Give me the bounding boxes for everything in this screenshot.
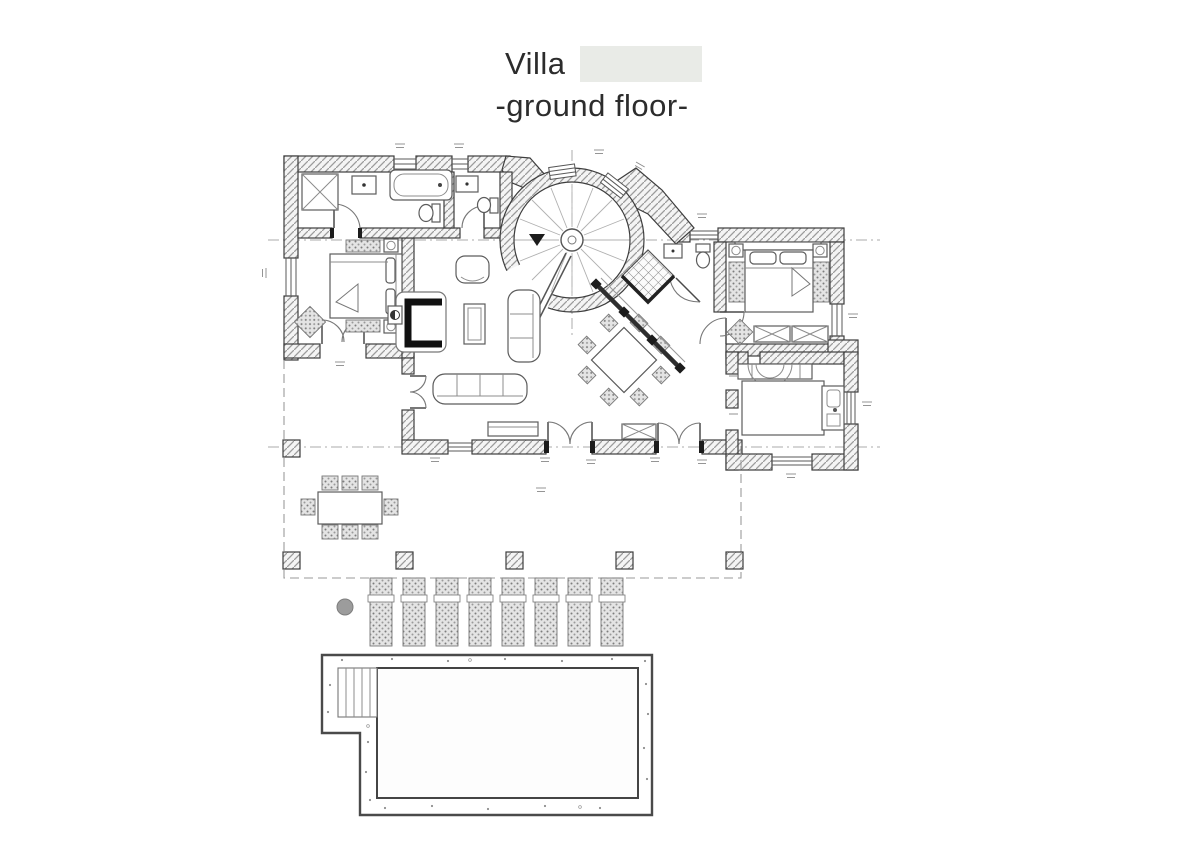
sofa-bottom (433, 374, 527, 404)
bathtub (390, 170, 452, 200)
washbasin (352, 176, 376, 194)
dining-chair (578, 366, 596, 384)
sink-counter (822, 386, 844, 430)
nightstand (346, 240, 380, 252)
outdoor-chair (384, 499, 398, 515)
sun-lounger (533, 578, 559, 646)
sun-lounger (434, 578, 460, 646)
dining-area (578, 314, 670, 406)
outdoor-chair (362, 525, 378, 539)
armchair (456, 256, 489, 283)
plant (294, 306, 325, 337)
terrace-column (506, 552, 523, 569)
swimming-pool (322, 655, 652, 815)
sun-lounger (368, 578, 394, 646)
terrace-column (283, 440, 300, 457)
bedroom-2 (727, 242, 829, 345)
bathroom-1 (302, 170, 452, 222)
dining-chair (630, 388, 648, 406)
page: Villa -ground floor- (0, 0, 1200, 848)
dining-chair (578, 336, 596, 354)
terrace-column (283, 552, 300, 569)
dining-chair (600, 314, 618, 332)
sun-lounger (566, 578, 592, 646)
kitchen (726, 364, 844, 435)
wardrobe (754, 326, 828, 342)
sun-lounger (467, 578, 493, 646)
outdoor-chair (342, 525, 358, 539)
terrace-column (726, 552, 743, 569)
coffee-table (464, 304, 485, 344)
pool-basin (377, 668, 638, 798)
outdoor-chair (301, 499, 315, 515)
nightstand (346, 320, 380, 332)
pool-steps (338, 668, 377, 717)
bedroom-1 (294, 239, 402, 338)
dining-chair (652, 366, 670, 384)
cabinet (622, 424, 656, 439)
headboard (735, 242, 821, 250)
toilet (478, 198, 499, 214)
terrace-column (396, 552, 413, 569)
nightstand (813, 262, 829, 302)
sun-lounger (599, 578, 625, 646)
washbasin (456, 176, 478, 192)
floor-plan (0, 0, 1200, 848)
outdoor-dining-set (301, 476, 398, 539)
kitchen-island (742, 381, 824, 435)
terrace-column (616, 552, 633, 569)
parasol-base (337, 599, 353, 615)
outdoor-chair (322, 525, 338, 539)
sun-lounger (500, 578, 526, 646)
plant (727, 319, 752, 344)
toilet (419, 204, 440, 222)
double-bed (745, 250, 813, 312)
sun-lounger (401, 578, 427, 646)
nightstand (729, 262, 745, 302)
washbasin (664, 244, 682, 258)
sofa-right (508, 290, 540, 362)
outdoor-chair (322, 476, 338, 490)
outdoor-dining-table (318, 492, 382, 524)
outdoor-chair (362, 476, 378, 490)
toilet (696, 244, 710, 268)
dining-chair (600, 388, 618, 406)
outdoor-chair (342, 476, 358, 490)
sideboard (488, 422, 538, 436)
fireplace (388, 292, 446, 352)
sun-loungers (337, 578, 625, 646)
